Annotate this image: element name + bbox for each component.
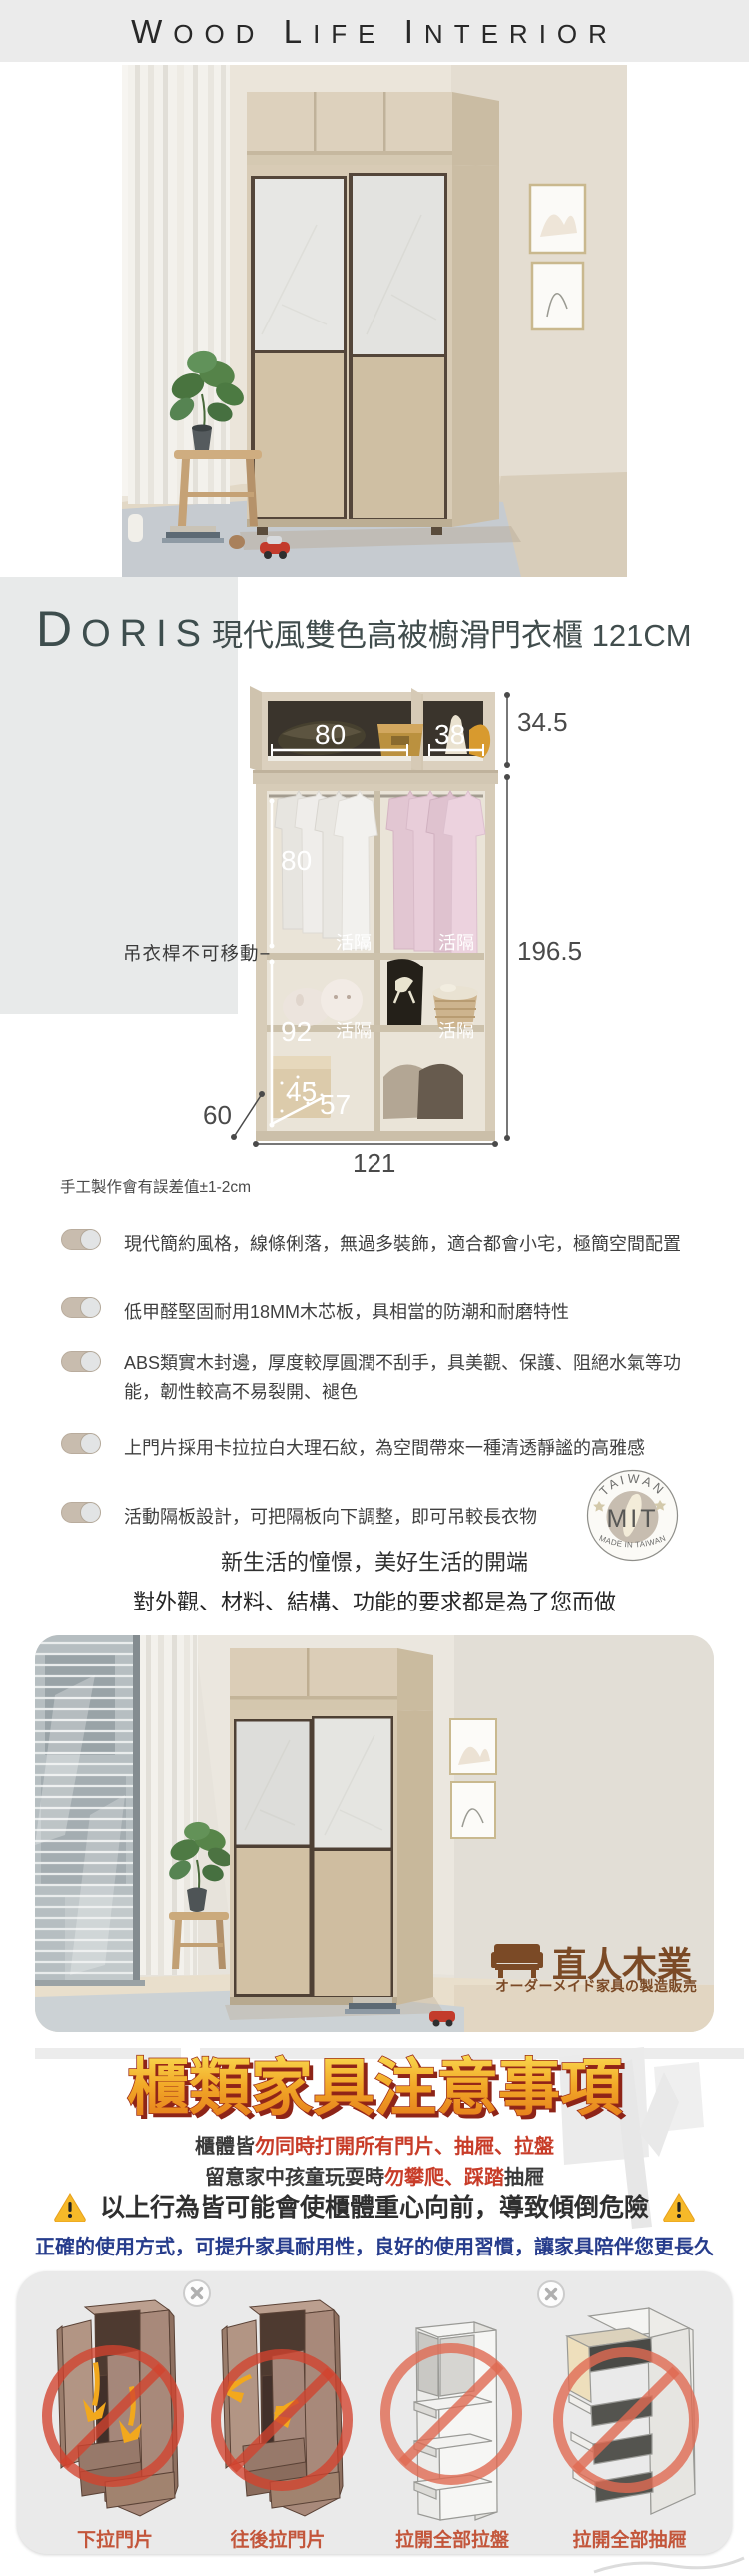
svg-text:活隔: 活隔	[438, 1021, 474, 1041]
svg-text:MIT: MIT	[606, 1505, 658, 1533]
svg-text:121: 121	[353, 1148, 395, 1178]
svg-text:92: 92	[281, 1016, 312, 1047]
svg-text:吊衣桿不可移動−: 吊衣桿不可移動−	[123, 943, 271, 964]
svg-text:活隔: 活隔	[438, 933, 474, 953]
svg-text:196.5: 196.5	[517, 936, 582, 966]
svg-text:活隔: 活隔	[336, 933, 372, 953]
svg-text:60: 60	[203, 1100, 232, 1130]
svg-text:80: 80	[315, 719, 346, 750]
svg-text:櫃類家具注意事項: 櫃類家具注意事項	[127, 2054, 623, 2123]
svg-text:80: 80	[281, 845, 312, 876]
svg-text:活隔: 活隔	[336, 1021, 372, 1041]
svg-text:34.5: 34.5	[517, 707, 568, 737]
svg-text:57: 57	[320, 1089, 351, 1120]
svg-text:38: 38	[434, 719, 465, 750]
